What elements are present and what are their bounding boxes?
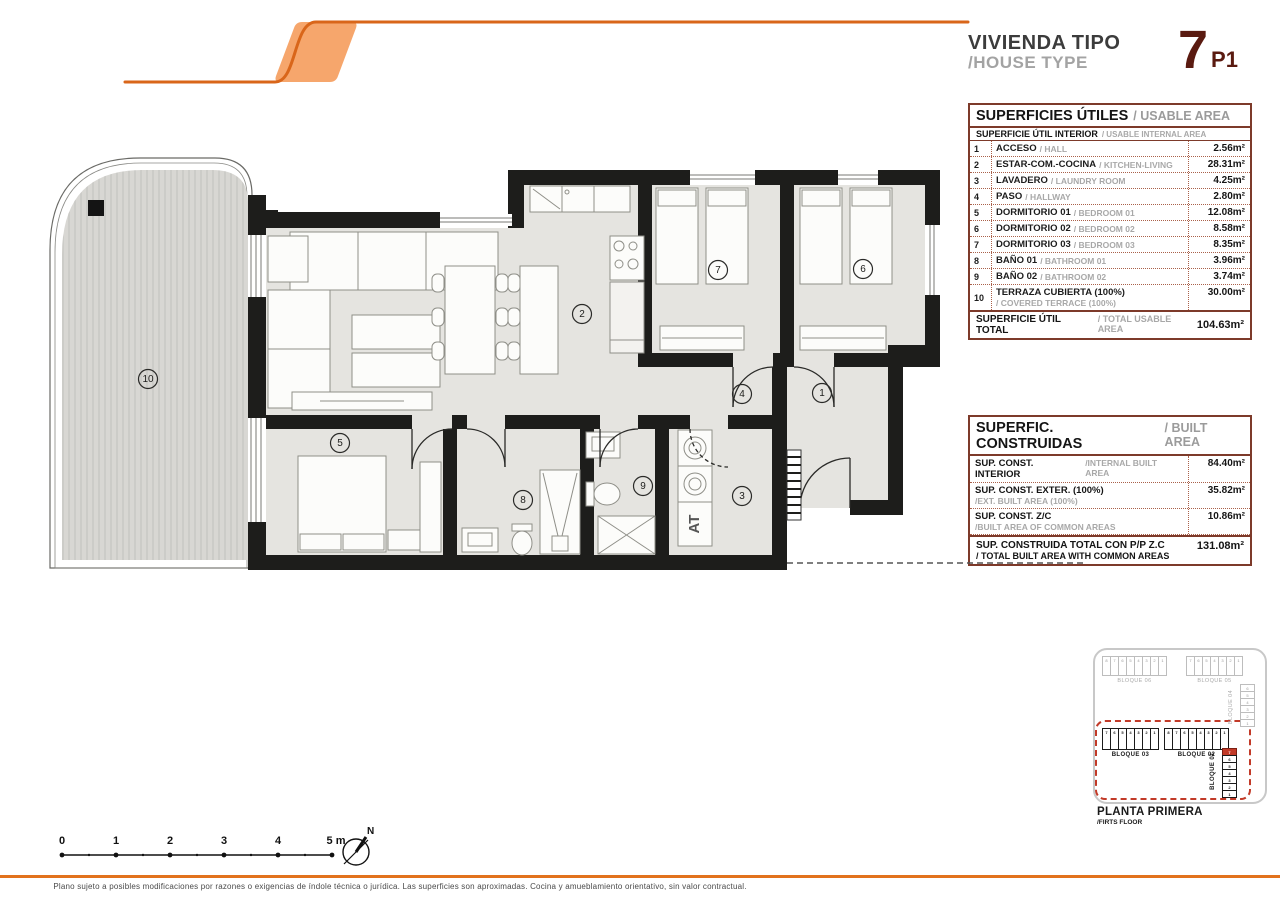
built-title-en: / BUILT AREA [1165, 421, 1244, 449]
keyplan-floor-es: PLANTA PRIMERA [1097, 806, 1203, 819]
title-en: /HOUSE TYPE [968, 54, 1120, 73]
disclaimer-text: Plano sujeto a posibles modificaciones p… [30, 882, 770, 891]
svg-text:1: 1 [113, 835, 119, 847]
svg-text:7: 7 [715, 265, 721, 276]
scale-labels: 012345 m [59, 835, 346, 847]
usable-title-en: / USABLE AREA [1133, 109, 1230, 123]
unit-cell: 1 [1220, 728, 1229, 750]
at-label: AT [686, 515, 703, 534]
svg-text:3: 3 [221, 835, 227, 847]
usable-total-label-en: / TOTAL USABLE AREA [1098, 314, 1197, 334]
svg-text:8: 8 [520, 495, 526, 506]
svg-text:10: 10 [142, 374, 154, 385]
bloque-01: 7654321BLOQUE 01 [1222, 748, 1237, 798]
toilet [512, 531, 532, 555]
svg-text:9: 9 [640, 481, 646, 492]
closet [420, 462, 441, 552]
svg-text:1: 1 [819, 388, 825, 399]
unit-cell: 1 [1240, 719, 1255, 727]
unit-identifier: 7 P1 [1178, 26, 1238, 75]
coffee-table [352, 315, 440, 349]
unit-cell: 1 [1150, 728, 1159, 750]
block-label: BLOQUE 02 [1164, 752, 1229, 758]
unit-number: 7 [1178, 26, 1208, 75]
brand-logo [90, 14, 970, 104]
svg-text:5 m: 5 m [327, 835, 346, 847]
keyplan-floor-en: /FIRTS FLOOR [1097, 819, 1203, 826]
site-key-plan: 87654321BLOQUE 06 7654321BLOQUE 05 65432… [1085, 642, 1280, 862]
svg-text:6: 6 [860, 264, 866, 275]
keyplan-caption: PLANTA PRIMERA /FIRTS FLOOR [1097, 806, 1203, 826]
unit-cell: 1 [1158, 656, 1167, 676]
terrace [50, 158, 252, 568]
house-type-title: VIVIENDA TIPO /HOUSE TYPE [968, 32, 1120, 73]
footer-orange-rule [0, 875, 1280, 878]
unit-cell: 1 [1234, 656, 1243, 676]
kitchen-island [520, 266, 558, 374]
usable-title-es: SUPERFICIES ÚTILES [976, 108, 1128, 124]
logo-line [125, 22, 968, 82]
floorplan-sheet: VIVIENDA TIPO /HOUSE TYPE 7 P1 SUPERFICI… [0, 0, 1280, 908]
block-label: BLOQUE 06 [1102, 678, 1167, 684]
usable-total-value: 104.63m² [1197, 319, 1244, 331]
usable-subtitle-es: SUPERFICIE ÚTIL INTERIOR [976, 129, 1098, 139]
unit-floor: P1 [1211, 47, 1238, 73]
bloque-04: 654321BLOQUE 04 [1240, 684, 1255, 727]
terrace-column [88, 200, 104, 216]
block-label: BLOQUE 03 [1102, 752, 1159, 758]
svg-text:3: 3 [739, 491, 745, 502]
block-label: BLOQUE 05 [1186, 678, 1243, 684]
usable-subtitle-en: / USABLE INTERNAL AREA [1102, 130, 1206, 139]
bloque-02: 87654321BLOQUE 02 [1164, 728, 1229, 758]
svg-text:4: 4 [739, 389, 745, 400]
title-es: VIVIENDA TIPO [968, 32, 1120, 54]
block-label: BLOQUE 01 [1210, 741, 1216, 801]
armchair [268, 236, 308, 282]
bloque-05: 7654321BLOQUE 05 [1186, 656, 1243, 684]
north-arrow: N [343, 826, 374, 865]
svg-text:5: 5 [337, 438, 343, 449]
svg-text:2: 2 [167, 835, 173, 847]
unit-cell: 1 [1222, 790, 1237, 798]
usable-table-header: SUPERFICIES ÚTILES / USABLE AREA [970, 105, 1250, 128]
dryer [678, 466, 712, 502]
floor-plan-drawing: AT [0, 140, 1090, 610]
svg-text:0: 0 [59, 835, 65, 847]
svg-text:2: 2 [579, 309, 585, 320]
bloque-06: 87654321BLOQUE 06 [1102, 656, 1167, 684]
bloque-03: 7654321BLOQUE 03 [1102, 728, 1159, 758]
scale-bar: 012345 m N [40, 822, 420, 880]
north-label: N [367, 826, 374, 837]
built-total-value: 131.08m² [1197, 540, 1244, 552]
svg-text:4: 4 [275, 835, 282, 847]
dining-table [445, 266, 495, 374]
